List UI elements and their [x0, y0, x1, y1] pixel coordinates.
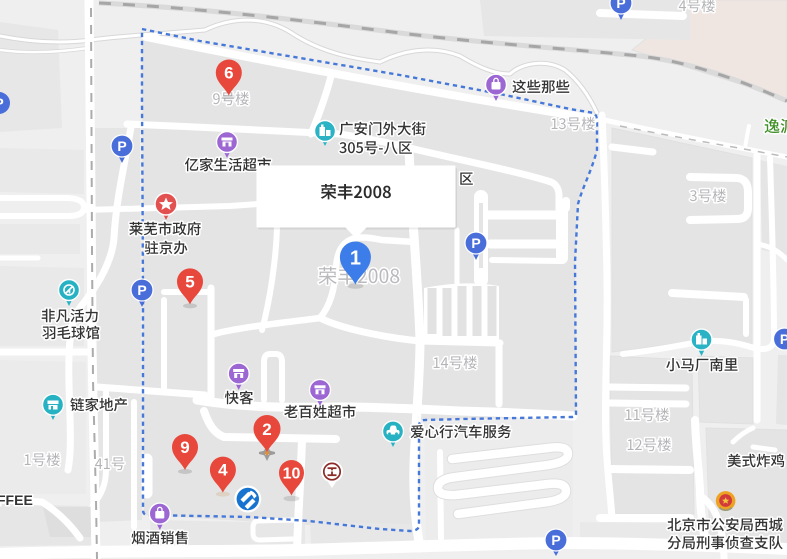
svg-text:2: 2 [262, 420, 271, 439]
svg-text:P: P [780, 331, 787, 347]
svg-text:4: 4 [218, 461, 228, 480]
svg-text:P: P [117, 138, 126, 154]
svg-text:P: P [471, 235, 480, 251]
svg-text:10: 10 [283, 466, 301, 483]
svg-text:P: P [551, 532, 560, 548]
svg-text:9: 9 [180, 438, 189, 457]
svg-text:P: P [137, 282, 146, 298]
svg-text:P: P [616, 0, 625, 11]
svg-text:P: P [0, 95, 4, 111]
svg-text:1: 1 [350, 248, 361, 270]
svg-text:6: 6 [224, 64, 233, 83]
svg-text:5: 5 [185, 272, 194, 291]
svg-text:FFEE: FFEE [0, 492, 33, 508]
